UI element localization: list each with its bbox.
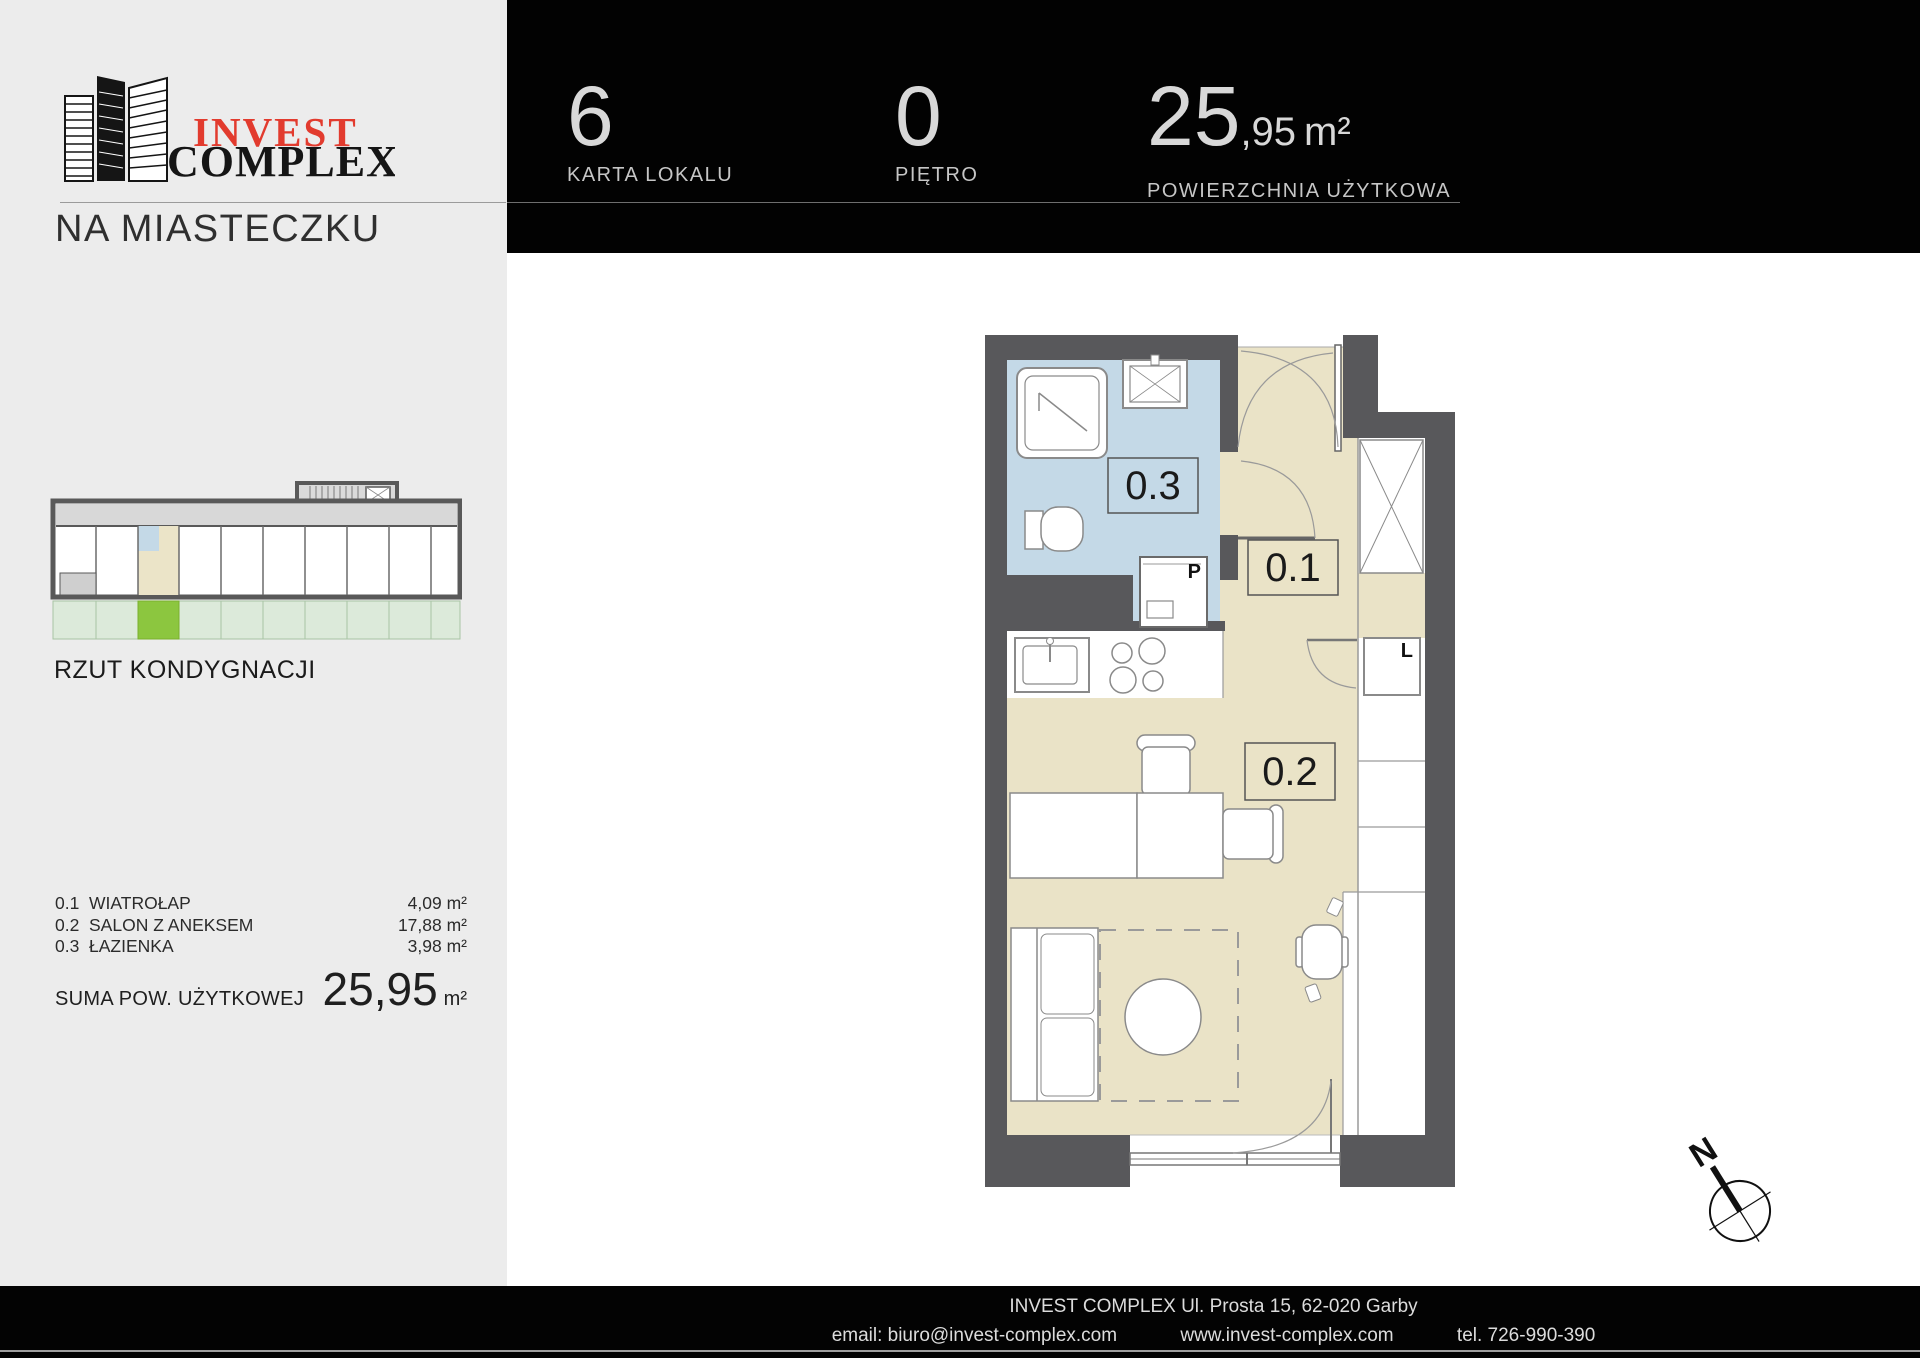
sum-label: SUMA POW. UŻYTKOWEJ <box>55 988 304 1011</box>
area-number: 25,95m² <box>1147 80 1451 168</box>
washer-label: P <box>1188 561 1201 583</box>
fridge-label: L <box>1401 640 1413 662</box>
room-row: 0.3 ŁAZIENKA 3,98 m² <box>55 936 467 958</box>
footer-edge-line <box>0 1350 1920 1352</box>
sum-row: SUMA POW. UŻYTKOWEJ 25,95 m² <box>55 962 467 1016</box>
room-number: 0.2 <box>55 915 89 937</box>
footer-email: email: biuro@invest-complex.com <box>832 1325 1117 1346</box>
washbasin-icon <box>1123 355 1187 408</box>
unit-number: 6 <box>567 80 733 152</box>
room-list: 0.1 WIATROŁAP 4,09 m² 0.2 SALON Z ANEKSE… <box>55 893 467 958</box>
room-name: SALON Z ANEKSEM <box>89 915 398 937</box>
sidebar: INVEST COMPLEX NA MIASTECZKU <box>0 0 507 1286</box>
highlighted-garden <box>138 601 179 639</box>
sum-value: 25,95 <box>323 962 438 1016</box>
room-name: ŁAZIENKA <box>89 936 408 958</box>
room-name: WIATROŁAP <box>89 893 408 915</box>
unit-floorplan: P L <box>985 335 1455 1190</box>
sidebar-divider <box>60 202 506 203</box>
bath-room-label: 0.3 <box>1125 464 1181 508</box>
room-row: 0.1 WIATROŁAP 4,09 m² <box>55 893 467 915</box>
storage-room <box>60 573 96 595</box>
project-name: NA MIASTECZKU <box>55 208 381 251</box>
stat-unit-number: 6 KARTA LOKALU <box>567 80 733 187</box>
shower-icon <box>1017 368 1107 458</box>
stat-floor: 0 PIĘTRO <box>895 80 978 187</box>
footer-bar: INVEST COMPLEX Ul. Prosta 15, 62-020 Gar… <box>0 1286 1920 1358</box>
sum-unit: m² <box>444 988 467 1011</box>
north-compass-icon: N <box>1680 1125 1800 1250</box>
sofa-icon <box>1011 928 1098 1101</box>
header-bar: 6 KARTA LOKALU 0 PIĘTRO 25,95m² POWIERZC… <box>507 0 1920 253</box>
round-table-icon <box>1125 979 1201 1055</box>
room-row: 0.2 SALON Z ANEKSEM 17,88 m² <box>55 915 467 937</box>
buildings-icon <box>65 76 167 181</box>
unit-number-label: KARTA LOKALU <box>567 164 733 187</box>
kitchen-sink-icon <box>1015 638 1089 693</box>
unit-card-page: INVEST COMPLEX NA MIASTECZKU <box>0 0 1920 1358</box>
room-area: 4,09 m² <box>408 893 467 915</box>
room-area: 17,88 m² <box>398 915 467 937</box>
salon-room-label: 0.2 <box>1262 750 1318 794</box>
floor-label: PIĘTRO <box>895 164 978 187</box>
stat-area: 25,95m² POWIERZCHNIA UŻYTKOWA <box>1147 80 1451 203</box>
toilet-icon <box>1025 507 1083 551</box>
company-logo: INVEST COMPLEX <box>55 58 395 183</box>
room-number: 0.1 <box>55 893 89 915</box>
room-area: 3,98 m² <box>408 936 467 958</box>
footer-contact: INVEST COMPLEX Ul. Prosta 15, 62-020 Gar… <box>507 1292 1920 1350</box>
compass-n-label: N <box>1683 1130 1724 1175</box>
header-divider <box>507 202 1460 203</box>
hall-room-label: 0.1 <box>1265 546 1321 590</box>
floor-number: 0 <box>895 80 978 152</box>
area-label: POWIERZCHNIA UŻYTKOWA <box>1147 180 1451 203</box>
floor-overview-map <box>42 475 462 645</box>
logo-complex-text: COMPLEX <box>167 137 395 183</box>
corridor <box>56 504 457 526</box>
footer-phone: tel. 726-990-390 <box>1457 1325 1595 1346</box>
floor-overview-label: RZUT KONDYGNACJI <box>54 656 316 685</box>
footer-website: www.invest-complex.com <box>1180 1325 1393 1346</box>
wardrobe-icon <box>1360 440 1423 573</box>
room-number: 0.3 <box>55 936 89 958</box>
footer-address: INVEST COMPLEX Ul. Prosta 15, 62-020 Gar… <box>507 1292 1920 1321</box>
